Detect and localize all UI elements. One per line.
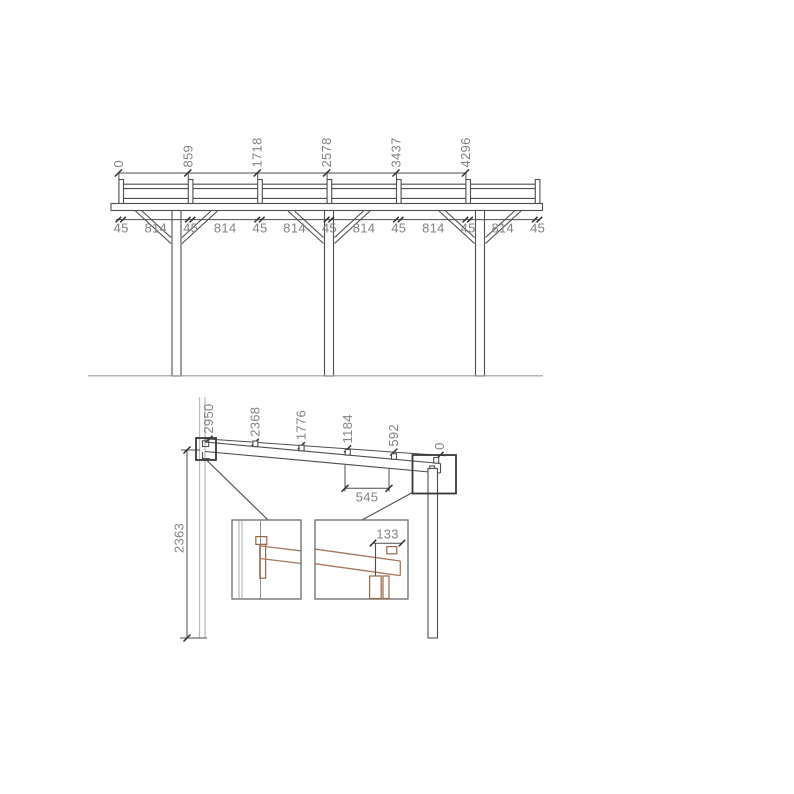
dim-label-2950: 2950 bbox=[201, 403, 216, 433]
dim-label-2578: 2578 bbox=[319, 137, 334, 167]
wall-bracket-mark bbox=[203, 441, 210, 459]
purlin bbox=[392, 454, 397, 460]
top-extension-lines bbox=[119, 173, 466, 180]
dim-label-859: 859 bbox=[180, 145, 195, 168]
dim-label-2368: 2368 bbox=[247, 407, 262, 437]
dim-label-45: 45 bbox=[183, 221, 198, 236]
dim-label-45: 45 bbox=[530, 221, 545, 236]
dim-label-133: 133 bbox=[376, 527, 399, 542]
detail-b-notch-block bbox=[387, 547, 397, 554]
rafter bbox=[188, 180, 193, 204]
front-elevation: 0 859 1718 2578 3437 4296 45 bbox=[88, 137, 545, 376]
detail-a-bracket-head bbox=[256, 537, 267, 545]
dim-label-3437: 3437 bbox=[389, 137, 404, 167]
dim-label-814: 814 bbox=[145, 221, 168, 236]
dim-label-45: 45 bbox=[461, 221, 476, 236]
detail-wall-connection bbox=[232, 520, 301, 599]
purlin bbox=[253, 441, 258, 447]
purlin bbox=[434, 458, 439, 464]
detail-a-wall-lines bbox=[239, 521, 242, 599]
detail-post-connection: 133 bbox=[315, 520, 408, 599]
detail-b-rafter bbox=[316, 549, 401, 575]
rafter bbox=[466, 180, 471, 204]
dim-label-1776: 1776 bbox=[294, 410, 309, 440]
rafter bbox=[258, 180, 263, 204]
dim-label-1718: 1718 bbox=[250, 137, 265, 167]
purlin bbox=[345, 450, 350, 456]
leader-lines bbox=[207, 461, 413, 521]
dim-label-4296: 4296 bbox=[458, 137, 473, 167]
rafter-ends bbox=[119, 180, 540, 204]
main-beam bbox=[111, 204, 543, 211]
dim-label-1184: 1184 bbox=[340, 414, 355, 443]
dim-label-2363: 2363 bbox=[171, 523, 186, 553]
dim-label-45: 45 bbox=[322, 221, 337, 236]
dim-label-0: 0 bbox=[111, 160, 126, 168]
rafter bbox=[327, 180, 332, 204]
rafter bbox=[535, 180, 540, 204]
detail-b-post-left bbox=[370, 576, 382, 599]
dim-label-45: 45 bbox=[114, 221, 129, 236]
rafter bbox=[397, 180, 402, 204]
dim-label-814: 814 bbox=[353, 221, 376, 236]
dim-label-814: 814 bbox=[422, 221, 445, 236]
purlin bbox=[299, 445, 304, 451]
dim-label-545: 545 bbox=[356, 490, 379, 505]
rafter bbox=[119, 180, 124, 204]
side-elevation: 2363 2950 2368 1776 1184 592 0 545 bbox=[171, 397, 456, 642]
dim-label-45: 45 bbox=[391, 221, 406, 236]
post-left bbox=[172, 211, 181, 377]
post-right bbox=[476, 211, 485, 377]
pergola-drawing: 0 859 1718 2578 3437 4296 45 bbox=[0, 0, 794, 794]
detail-b-post-right bbox=[383, 576, 389, 599]
dim-label-814: 814 bbox=[492, 221, 515, 236]
dim-label-592: 592 bbox=[386, 424, 401, 447]
dim-label-0-side: 0 bbox=[432, 442, 447, 450]
technical-drawing-canvas: 0 859 1718 2578 3437 4296 45 bbox=[0, 0, 794, 794]
dim-label-814: 814 bbox=[283, 221, 306, 236]
dim-label-45: 45 bbox=[252, 221, 267, 236]
dim-label-814: 814 bbox=[214, 221, 237, 236]
spacing-dimension-line bbox=[345, 465, 389, 492]
detail-a-rafter bbox=[261, 546, 301, 563]
